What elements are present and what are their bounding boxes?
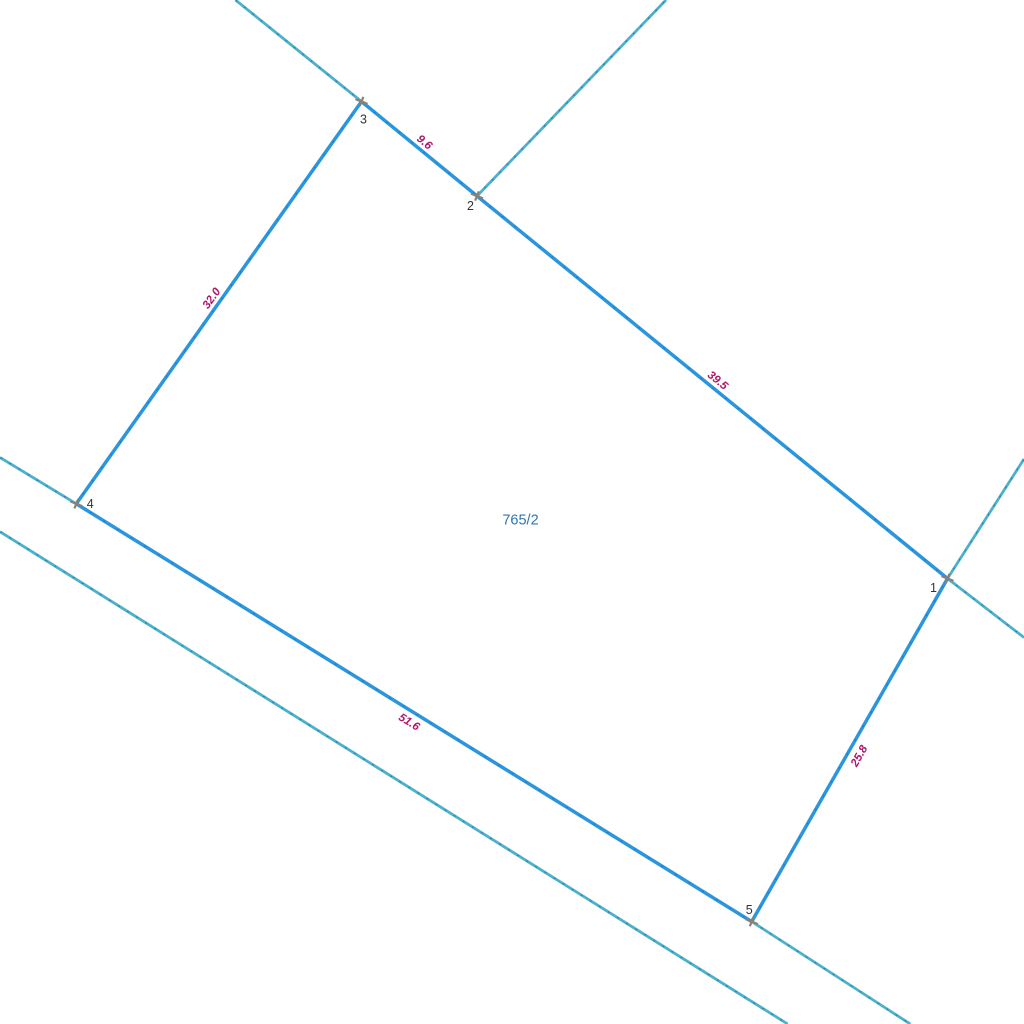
svg-text:3: 3 (360, 113, 367, 127)
svg-text:765/2: 765/2 (502, 513, 538, 529)
svg-text:5: 5 (746, 903, 753, 917)
svg-text:4: 4 (87, 497, 94, 511)
svg-text:1: 1 (930, 581, 937, 595)
svg-text:2: 2 (467, 199, 474, 213)
